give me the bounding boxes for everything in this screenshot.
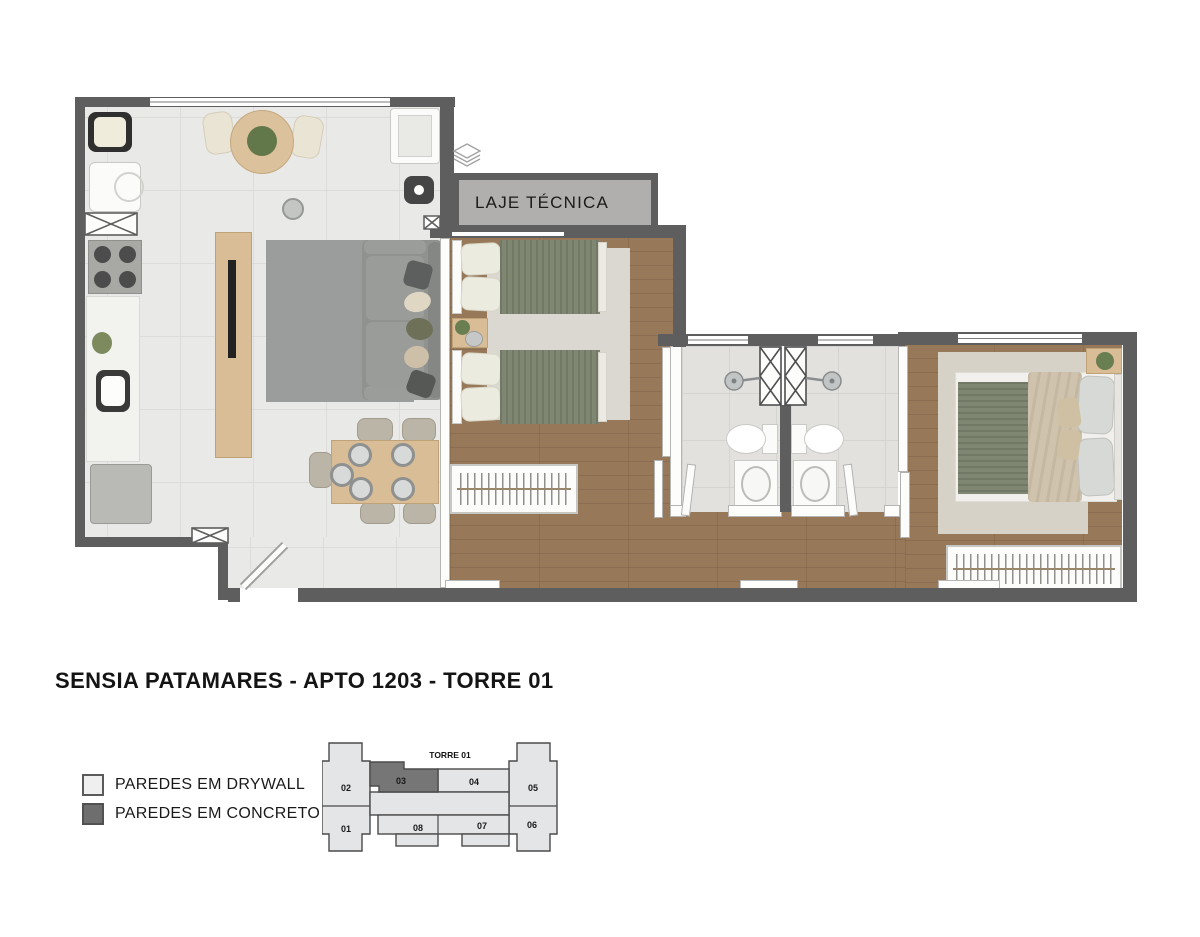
keyplan: TORRE 01 02 03 04 05 01 08 07 06 bbox=[322, 742, 558, 854]
concrete-swatch bbox=[82, 803, 104, 825]
keyplan-unit-03: 03 bbox=[396, 776, 406, 786]
duct-x-icon bbox=[192, 528, 228, 543]
entrance-door-icon bbox=[243, 545, 285, 587]
keyplan-unit-06: 06 bbox=[527, 820, 537, 830]
plan-title: SENSIA PATAMARES - APTO 1203 - TORRE 01 bbox=[55, 668, 553, 694]
drywall-label: PAREDES EM DRYWALL bbox=[115, 776, 305, 794]
shower-head-icon bbox=[806, 372, 841, 390]
keyplan-unit-08: 08 bbox=[413, 823, 423, 833]
keyplan-unit-01: 01 bbox=[341, 824, 351, 834]
floorplan: LAJE TÉCNICA bbox=[0, 0, 1200, 640]
shaft-x-icon bbox=[760, 347, 781, 405]
keyplan-unit-04: 04 bbox=[469, 777, 479, 787]
keyplan-left-block bbox=[322, 743, 370, 851]
keyplan-tower-label: TORRE 01 bbox=[429, 750, 471, 760]
keyplan-unit-05: 05 bbox=[528, 783, 538, 793]
shaft-x-icon bbox=[785, 347, 806, 405]
page: { "title": "SENSIA PATAMARES - APTO 1203… bbox=[0, 0, 1200, 937]
keyplan-corridor bbox=[370, 792, 509, 815]
keyplan-bottom-bar bbox=[378, 815, 509, 834]
keyplan-unit-07: 07 bbox=[477, 821, 487, 831]
duct-x-icon bbox=[424, 216, 440, 229]
concrete-label: PAREDES EM CONCRETO bbox=[115, 805, 320, 823]
keyplan-unit07-tab bbox=[462, 834, 509, 846]
legend-item-concrete: PAREDES EM CONCRETO bbox=[82, 803, 320, 825]
keyplan-unit08-tab bbox=[396, 834, 438, 846]
shower-head-icon bbox=[725, 372, 760, 390]
legend-item-drywall: PAREDES EM DRYWALL bbox=[82, 774, 305, 796]
keyplan-right-block bbox=[509, 743, 557, 851]
drywall-swatch bbox=[82, 774, 104, 796]
plan-line-overlay bbox=[0, 0, 1200, 640]
keyplan-unit-02: 02 bbox=[341, 783, 351, 793]
duct-x-icon bbox=[85, 213, 137, 235]
